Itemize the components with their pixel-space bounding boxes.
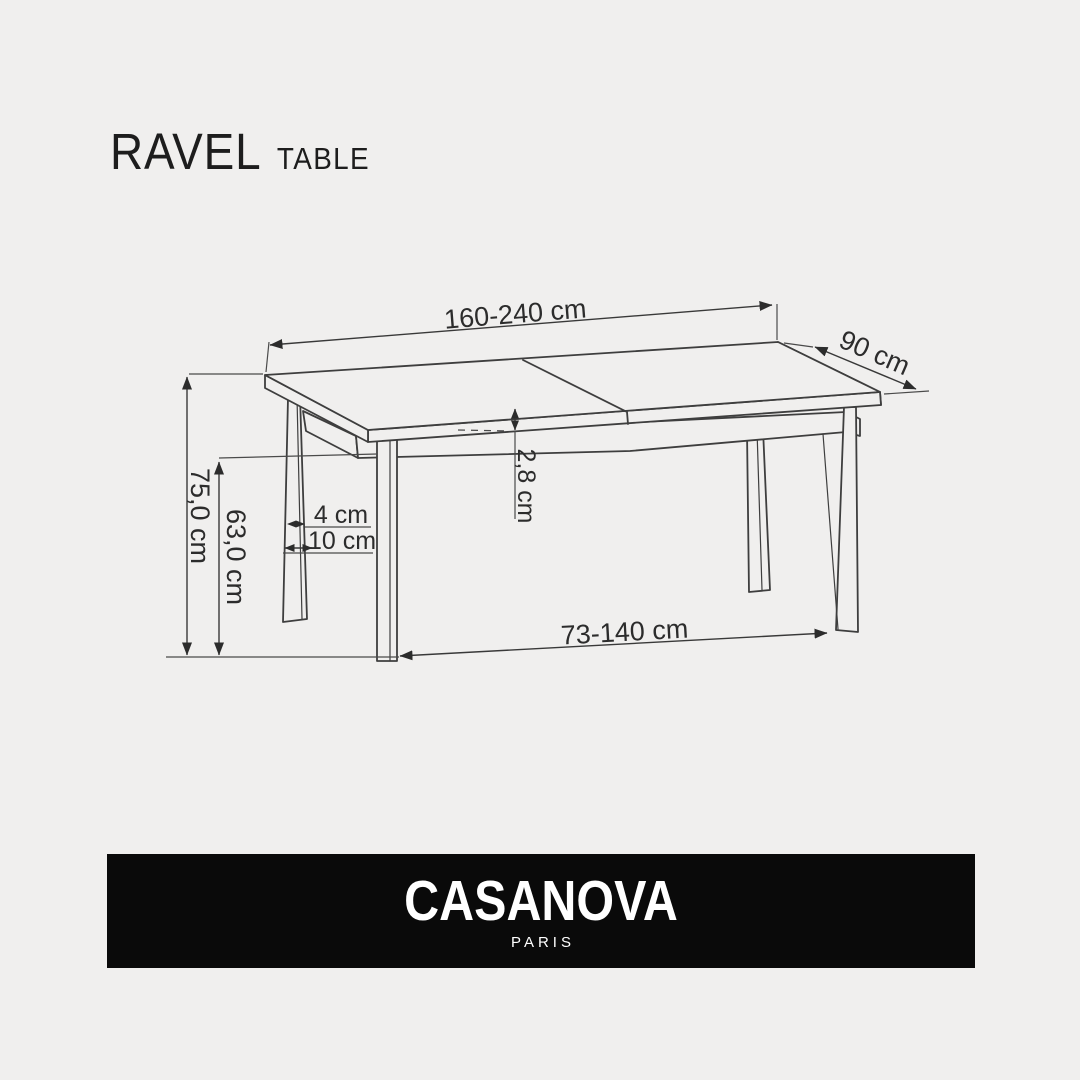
dim-label-tabletop-thickness: 2,8 cm <box>512 448 540 523</box>
dim-label-leg-thickness: 4 cm <box>314 501 368 529</box>
brand-banner: CASANOVA PARIS <box>107 854 975 968</box>
dim-label-depth: 90 cm <box>835 324 914 381</box>
dim-label-leg-offset: 10 cm <box>308 527 376 555</box>
dim-label-clearance-height: 63,0 cm <box>221 509 251 605</box>
dim-label-top-width: 160-240 cm <box>443 293 588 334</box>
table-front-right-leg <box>823 407 858 632</box>
brand-logo: CASANOVA <box>404 873 678 930</box>
dimension-annotations: 160-240 cm 90 cm 75,0 cm 63,0 cm 4 cm 10… <box>166 293 929 657</box>
product-dimension-sheet: RAVEL TABLE <box>0 0 1080 1080</box>
table-back-right-leg <box>747 429 770 592</box>
brand-city: PARIS <box>507 935 575 950</box>
dim-label-total-height: 75,0 cm <box>185 468 215 564</box>
table-back-left-leg <box>283 396 307 622</box>
table-front-left-leg <box>377 438 397 661</box>
dim-label-leg-distance: 73-140 cm <box>560 613 689 650</box>
